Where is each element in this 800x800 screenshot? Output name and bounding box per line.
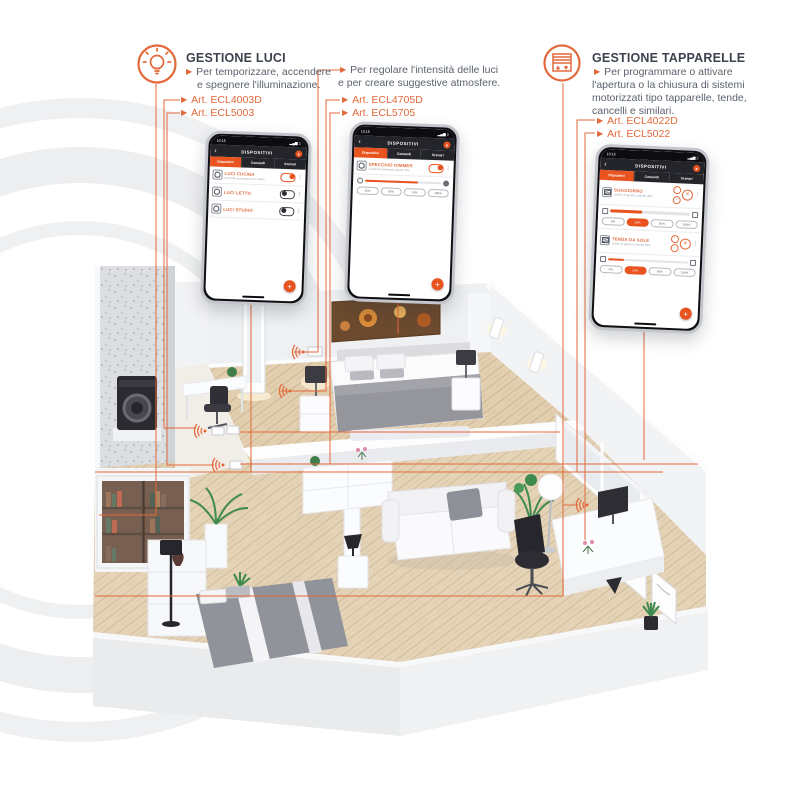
preset-100[interactable]: 100% [675, 220, 698, 229]
callout-tapparelle-article-1: ▶ Art. ECL4022D [597, 115, 678, 128]
arrow-marker-icon: ▶ [342, 95, 348, 104]
kebab-menu-icon[interactable]: ⋮ [297, 192, 302, 197]
callout-tapparelle-line3: motorizzati tipo tapparelle, tende, [592, 92, 747, 105]
shutter-up-button[interactable]: ↑ [672, 186, 680, 194]
washing-machine [113, 376, 161, 441]
bulb-icon [212, 169, 222, 179]
arrow-marker-icon: ▶ [340, 65, 346, 74]
callout-luci-title: GESTIONE LUCI [186, 51, 286, 65]
status-time: 10:15 [361, 129, 370, 133]
arrow-marker-icon: ▶ [181, 108, 187, 117]
preset-100[interactable]: 100% [673, 268, 696, 277]
callout-dimmer-article-2: ▶ Art. ECL5705 [342, 107, 415, 120]
shutter-controls: ↑ ↓ ✕ [670, 235, 691, 253]
shutter-stop-button[interactable]: ✕ [680, 238, 691, 249]
callout-luci-line1: ▶ Per temporizzare, accendere [186, 66, 331, 79]
preset-50[interactable]: 50% [651, 219, 674, 228]
kebab-menu-icon[interactable]: ⋮ [695, 193, 700, 198]
bulb-dim-icon [357, 177, 363, 183]
dimmer-presets: 25% 50% 75% 100% [353, 184, 453, 201]
app-logo-icon: e [443, 141, 450, 148]
arrow-marker-icon: ▶ [594, 67, 600, 76]
kebab-menu-icon[interactable]: ⋮ [297, 175, 302, 180]
app-logo-icon: e [693, 164, 700, 171]
status-time: 10:15 [217, 138, 226, 142]
home-indicator [242, 296, 264, 299]
arrow-marker-icon: ▶ [342, 108, 348, 117]
roller-shutter-icon [542, 43, 582, 83]
toggle-on[interactable] [280, 172, 295, 182]
preset-50[interactable]: 50% [648, 267, 671, 276]
add-device-fab[interactable]: + [680, 307, 693, 320]
kebab-menu-icon[interactable]: ⋮ [693, 242, 698, 247]
callout-luci-line2: e spegnere l'illuminazione. [197, 79, 320, 92]
callout-dimmer-line1: ▶ Per regolare l'intensità delle luci [340, 64, 498, 77]
arrow-marker-icon: ▶ [181, 95, 187, 104]
app-logo-icon: e [295, 150, 302, 157]
status-icons: ▂▄▆ ▯ [438, 132, 449, 136]
back-button[interactable]: ‹ [358, 138, 361, 145]
bulb-icon [211, 203, 221, 213]
shutter-open-icon [692, 211, 698, 217]
device-row-luci-studio: LUCI STUDIO ⋮ [208, 200, 305, 220]
toggle-off[interactable] [279, 206, 294, 216]
bulb-bright-icon [443, 180, 449, 186]
arrow-marker-icon: ▶ [186, 67, 192, 76]
preset-50[interactable]: 50% [380, 187, 402, 196]
preset-100[interactable]: 100% [427, 189, 449, 198]
callout-dimmer-line2: e per creare suggestive atmosfere. [338, 77, 500, 90]
shutter-down-button[interactable]: ↓ [672, 195, 680, 203]
status-icons: ▂▄▆ ▯ [687, 155, 698, 159]
callout-luci-article-2: ▶ Art. ECL5003 [181, 107, 254, 120]
promo-graphic: GESTIONE LUCI ▶ Per temporizzare, accend… [0, 0, 800, 800]
shutter-up-button[interactable]: ↑ [670, 235, 678, 243]
lightbulb-icon [136, 43, 178, 85]
dimmer-track[interactable] [365, 179, 441, 184]
kebab-menu-icon[interactable]: ⋮ [296, 209, 301, 214]
bulb-icon [212, 186, 222, 196]
shutter-down-button[interactable]: ↓ [670, 244, 678, 252]
kebab-menu-icon[interactable]: ⋮ [445, 166, 450, 171]
callout-luci-article-1: ▶ Art. ECL4003D [181, 94, 262, 107]
preset-25[interactable]: 25% [626, 217, 649, 226]
back-button[interactable]: ‹ [214, 147, 217, 154]
callout-tapparelle-line1: ▶ Per programmare o attivare [594, 66, 733, 79]
app-title: DISPOSITIVI [608, 162, 693, 171]
wardrobe [468, 294, 490, 358]
preset-75[interactable]: 75% [404, 188, 426, 197]
callout-tapparelle-title: GESTIONE TAPPARELLE [592, 51, 745, 65]
toggle-off[interactable] [280, 189, 295, 199]
arrow-marker-icon: ▶ [597, 129, 603, 138]
shutter-closed-icon [602, 207, 608, 213]
preset-25[interactable]: 25% [357, 186, 379, 195]
shutter-open-icon [690, 260, 696, 266]
arrow-marker-icon: ▶ [597, 116, 603, 125]
sofa [382, 482, 517, 570]
app-title: DISPOSITIVI [363, 139, 444, 147]
nightstand-right [452, 350, 480, 410]
apartment-illustration [0, 0, 800, 800]
status-time: 10:15 [607, 152, 616, 156]
callout-dimmer-article-1: ▶ Art. ECL4705D [342, 94, 423, 107]
callout-tapparelle-line2: l'apertura o la chiusura di sistemi [592, 79, 745, 92]
shutter-icon [602, 187, 612, 197]
bulb-icon [356, 160, 366, 170]
home-indicator [388, 294, 410, 297]
add-device-fab[interactable]: + [283, 280, 295, 292]
shutter-icon [600, 235, 610, 245]
preset-25[interactable]: 25% [624, 266, 647, 275]
preset-0[interactable]: 0% [599, 265, 622, 274]
wallpaper-wall [100, 266, 168, 480]
shutter-stop-button[interactable]: ✕ [682, 190, 693, 201]
phone-dimmer: 10:15 ▂▄▆ ▯ ‹ DISPOSITIVI e Dispositivi … [344, 121, 460, 305]
callout-tapparelle-article-2: ▶ Art. ECL5022 [597, 128, 670, 141]
app-title: DISPOSITIVI [219, 148, 296, 156]
shutter-controls: ↑ ↓ ✕ [672, 186, 693, 204]
shutter-closed-icon [600, 256, 606, 262]
phone-luci: 10:15 ▂▄▆ ▯ ‹ DISPOSITIVI e Dispositivi … [200, 130, 312, 307]
phone-tapparelle: 10:15 ▂▄▆ ▯ ‹ DISPOSITIVI e Dispositivi … [588, 144, 710, 335]
back-button[interactable]: ‹ [604, 160, 607, 167]
toggle-on[interactable] [428, 163, 443, 173]
home-indicator [634, 322, 656, 325]
add-device-fab[interactable]: + [431, 278, 443, 290]
status-icons: ▂▄▆ ▯ [290, 141, 301, 145]
preset-0[interactable]: 0% [602, 216, 625, 225]
